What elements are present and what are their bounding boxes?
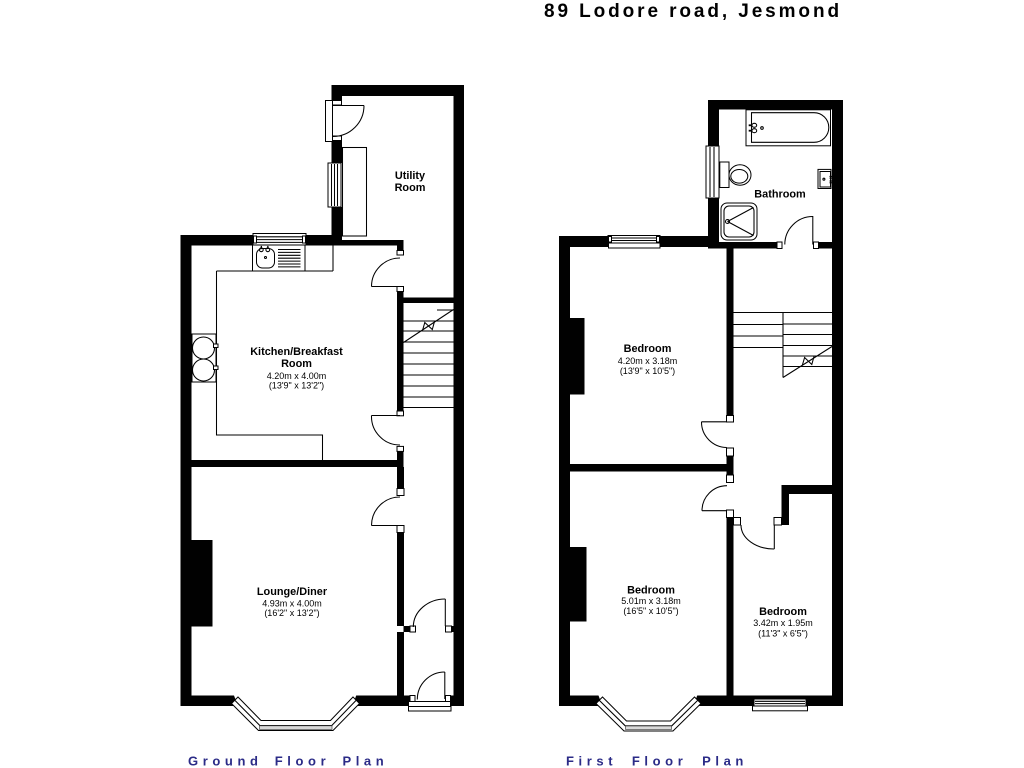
svg-text:(13'9" x 10'5"): (13'9" x 10'5") — [620, 366, 675, 376]
svg-text:(16'5" x 10'5"): (16'5" x 10'5") — [623, 606, 678, 616]
svg-text:(11'3" x 6'5"): (11'3" x 6'5") — [758, 629, 808, 639]
svg-text:Bathroom: Bathroom — [754, 188, 806, 200]
svg-text:Room: Room — [281, 358, 312, 370]
svg-text:Room: Room — [395, 182, 426, 194]
svg-text:Bedroom: Bedroom — [759, 606, 807, 618]
svg-text:3.42m x 1.95m: 3.42m x 1.95m — [753, 618, 813, 628]
svg-text:Lounge/Diner: Lounge/Diner — [257, 586, 328, 598]
svg-text:5.01m x 3.18m: 5.01m x 3.18m — [621, 596, 681, 606]
svg-text:Utility: Utility — [395, 170, 425, 182]
svg-text:Ground Floor Plan: Ground Floor Plan — [188, 754, 388, 768]
svg-text:4.20m x 3.18m: 4.20m x 3.18m — [618, 356, 678, 366]
svg-text:First Floor Plan: First Floor Plan — [566, 754, 748, 768]
svg-text:4.20m x 4.00m: 4.20m x 4.00m — [267, 371, 327, 381]
svg-text:Bedroom: Bedroom — [624, 343, 672, 355]
svg-text:Kitchen/Breakfast: Kitchen/Breakfast — [250, 346, 343, 358]
svg-text:(13'9" x 13'2"): (13'9" x 13'2") — [269, 381, 324, 391]
svg-text:Bedroom: Bedroom — [627, 585, 675, 597]
svg-text:4.93m x 4.00m: 4.93m x 4.00m — [262, 599, 322, 609]
svg-text:89 Lodore road, Jesmond: 89 Lodore road, Jesmond — [544, 1, 842, 22]
svg-text:(16'2" x 13'2"): (16'2" x 13'2") — [264, 608, 319, 618]
